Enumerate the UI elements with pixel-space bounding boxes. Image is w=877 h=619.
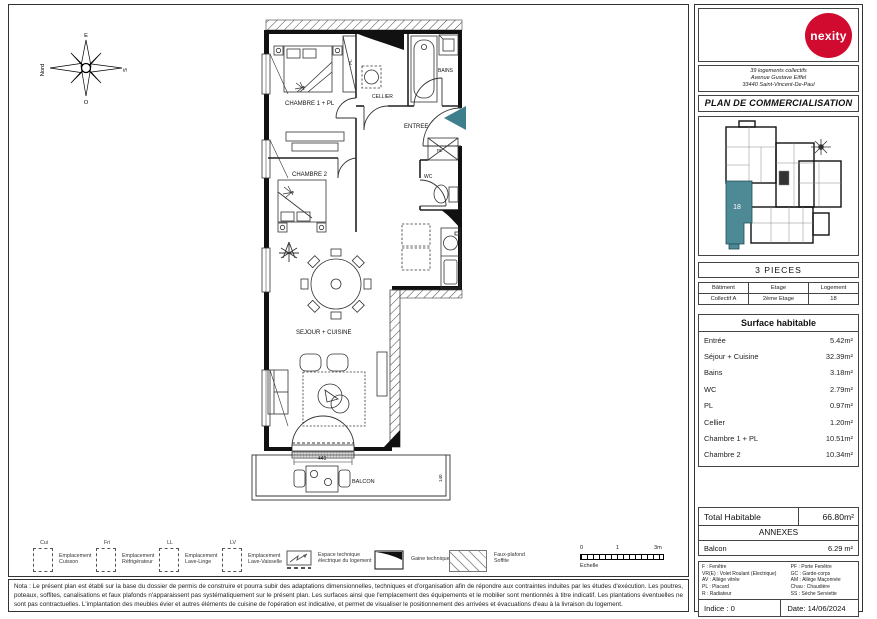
surface-row: PL0.97m² bbox=[699, 398, 858, 414]
room-cellier: CELLIER bbox=[372, 94, 393, 100]
room-labels: CHAMBRE 1 + PL CHAMBRE 2 SEJOUR + CUISIN… bbox=[285, 59, 454, 485]
unit-value-logement: 18 bbox=[809, 294, 859, 305]
abbreviations-legend: F : Fenêtre VR(E) : Volet Roulant (Elect… bbox=[698, 561, 859, 600]
gaine-technique-icon bbox=[374, 550, 404, 570]
info-panel: nexity 39 logements collectifs Avenue Gu… bbox=[694, 4, 863, 612]
room-bains: BAINS bbox=[438, 68, 454, 74]
address-line: 33440 Saint-Vincent-De-Paul bbox=[699, 82, 858, 89]
unit-table-header-row: Bâtiment Etage Logement bbox=[699, 283, 859, 294]
legend-gaine-technique: Gaine technique bbox=[374, 550, 404, 575]
address-line: Avenue Gustave Eiffel bbox=[699, 75, 858, 82]
room-pl-entree: PL bbox=[437, 148, 443, 153]
surface-table: Surface habitable Entrée5.42m² Séjour + … bbox=[698, 314, 859, 467]
dashed-box-icon: Cui bbox=[33, 548, 53, 572]
room-pl-chambre1: PL bbox=[348, 59, 353, 65]
surface-row: Entrée5.42m² bbox=[699, 332, 858, 348]
surface-table-title: Surface habitable bbox=[699, 315, 858, 332]
nota-disclaimer: Nota : Le présent plan est établi sur la… bbox=[8, 579, 689, 612]
plan-sheet: Nord E S O bbox=[0, 0, 877, 619]
dashed-box-icon: LV bbox=[222, 548, 242, 572]
date-cell: Date: 14/06/2024 bbox=[781, 604, 858, 613]
room-sejour: SEJOUR + CUISINE bbox=[296, 330, 352, 336]
exterior-walls bbox=[264, 20, 462, 451]
unit-header-logement: Logement bbox=[809, 283, 859, 294]
annex-value: 6.29 m² bbox=[828, 544, 853, 553]
nexity-logo: nexity bbox=[805, 13, 852, 58]
address-line: 39 logements collectifs bbox=[699, 68, 858, 75]
interior-walls bbox=[268, 34, 460, 232]
unit-type: 3 PIECES bbox=[698, 262, 859, 278]
keyplan-drawing: 18 bbox=[699, 117, 859, 255]
compass-west-label: O bbox=[84, 100, 89, 106]
revision-footer: Indice : 0 Date: 14/06/2024 bbox=[698, 600, 859, 617]
legend-espace-technique: Espace techniqueélectrique du logement bbox=[286, 550, 312, 575]
total-value: 66.80m² bbox=[798, 508, 858, 525]
compass-north-label: Nord bbox=[40, 64, 46, 77]
surface-row: Séjour + Cuisine32.39m² bbox=[699, 348, 858, 364]
room-chambre1: CHAMBRE 1 + PL bbox=[285, 101, 335, 107]
room-balcon: BALCON bbox=[352, 479, 375, 485]
dim-balcony-width: 449 bbox=[318, 456, 327, 462]
compass-south-label: S bbox=[123, 68, 129, 72]
unit-header-etage: Etage bbox=[748, 283, 808, 294]
dashed-box-icon: Fri bbox=[96, 548, 116, 572]
total-habitable-row: Total Habitable 66.80m² bbox=[698, 507, 859, 526]
closets bbox=[343, 36, 458, 160]
annex-label: Balcon bbox=[704, 544, 727, 553]
keyplan-unit-number: 18 bbox=[733, 204, 741, 211]
faux-plafond-icon bbox=[449, 550, 487, 572]
scale-ruler bbox=[580, 554, 664, 560]
keyplan-unit-highlight bbox=[726, 181, 752, 244]
room-entree: ENTREE bbox=[404, 124, 428, 130]
compass-east-label: E bbox=[84, 33, 88, 39]
keyplan-section: 18 bbox=[698, 116, 859, 256]
entrance-arrow-icon bbox=[444, 106, 466, 130]
address-section: 39 logements collectifs Avenue Gustave E… bbox=[698, 65, 859, 92]
total-label: Total Habitable bbox=[699, 508, 798, 525]
room-wc: WC bbox=[424, 174, 433, 180]
unit-table-value-row: Collectif A 2ème Etage 18 bbox=[699, 294, 859, 305]
surface-row: Cellier1.20m² bbox=[699, 414, 858, 430]
annex-row: Balcon 6.29 m² bbox=[698, 541, 859, 556]
surface-row: Chambre 210.34m² bbox=[699, 447, 858, 463]
unit-table: Bâtiment Etage Logement Collectif A 2ème… bbox=[698, 282, 859, 305]
logo-section: nexity bbox=[698, 8, 859, 62]
espace-technique-icon bbox=[286, 550, 312, 570]
dashed-box-icon: LL bbox=[159, 548, 179, 572]
room-chambre2: CHAMBRE 2 bbox=[292, 172, 328, 178]
compass-rose-icon bbox=[50, 40, 122, 96]
balcony bbox=[252, 455, 450, 500]
indice-cell: Indice : 0 bbox=[699, 600, 781, 616]
surface-row: WC2.79m² bbox=[699, 381, 858, 397]
unit-value-etage: 2ème Etage bbox=[748, 294, 808, 305]
annexes-title: ANNEXES bbox=[698, 526, 859, 541]
surface-row: Chambre 1 + PL10.51m² bbox=[699, 430, 858, 446]
unit-value-batiment: Collectif A bbox=[699, 294, 749, 305]
dim-balcony-depth: 140 bbox=[438, 474, 443, 482]
unit-header-batiment: Bâtiment bbox=[699, 283, 749, 294]
document-title: PLAN DE COMMERCIALISATION bbox=[698, 95, 859, 112]
surface-row: Bains3.18m² bbox=[699, 365, 858, 381]
